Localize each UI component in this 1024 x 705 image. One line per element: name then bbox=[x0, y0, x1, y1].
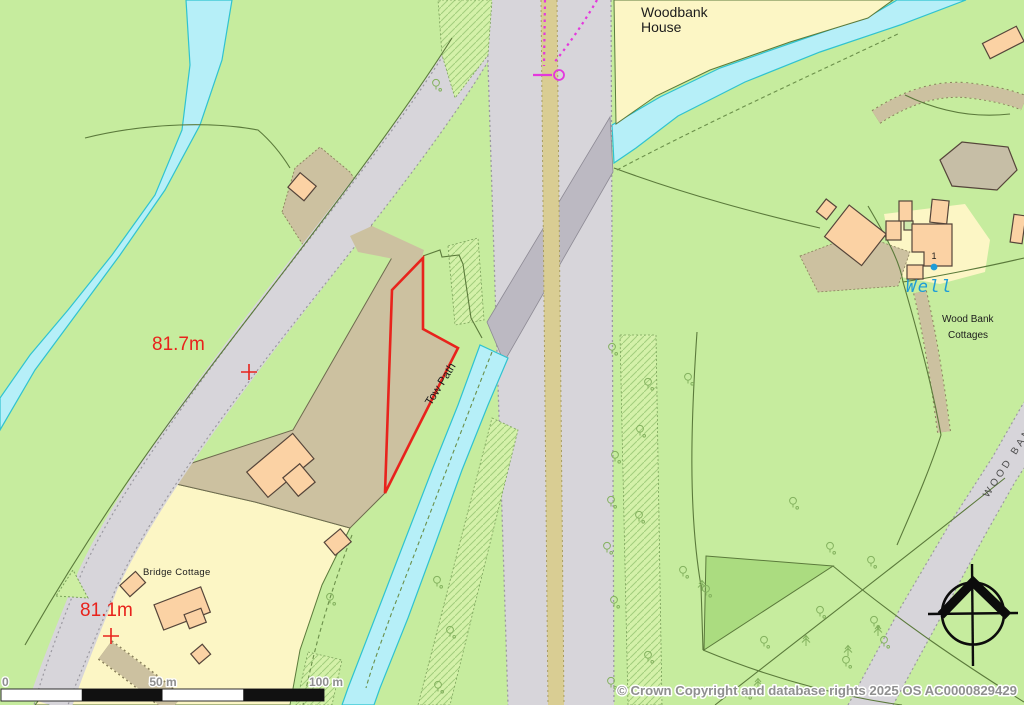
scale-fifty: 50 m bbox=[149, 675, 176, 689]
label-bridge-cottage: Bridge Cottage bbox=[143, 567, 211, 578]
label-well: Well bbox=[906, 277, 953, 297]
label-house-number: 1 bbox=[931, 251, 936, 261]
os-map: Woodbank House 81.7m 81.1m Bridge Cottag… bbox=[0, 0, 1024, 705]
label-woodbank-house-2: House bbox=[641, 19, 682, 35]
map-canvas[interactable]: Woodbank House 81.7m 81.1m Bridge Cottag… bbox=[0, 0, 1024, 705]
scale-hundred: 100 m bbox=[309, 675, 343, 689]
label-woodbank-house-1: Woodbank bbox=[641, 4, 709, 20]
label-spot-height-lower: 81.1m bbox=[80, 600, 133, 621]
main-road bbox=[486, 0, 614, 705]
scale-zero: 0 bbox=[2, 675, 9, 689]
label-spot-height-upper: 81.7m bbox=[152, 334, 205, 355]
label-wood-bank-2: Cottages bbox=[948, 330, 988, 341]
copyright-notice: © Crown Copyright and database rights 20… bbox=[617, 683, 1017, 698]
label-wood-bank-1: Wood Bank bbox=[942, 314, 995, 325]
well-dot-icon bbox=[931, 264, 938, 271]
